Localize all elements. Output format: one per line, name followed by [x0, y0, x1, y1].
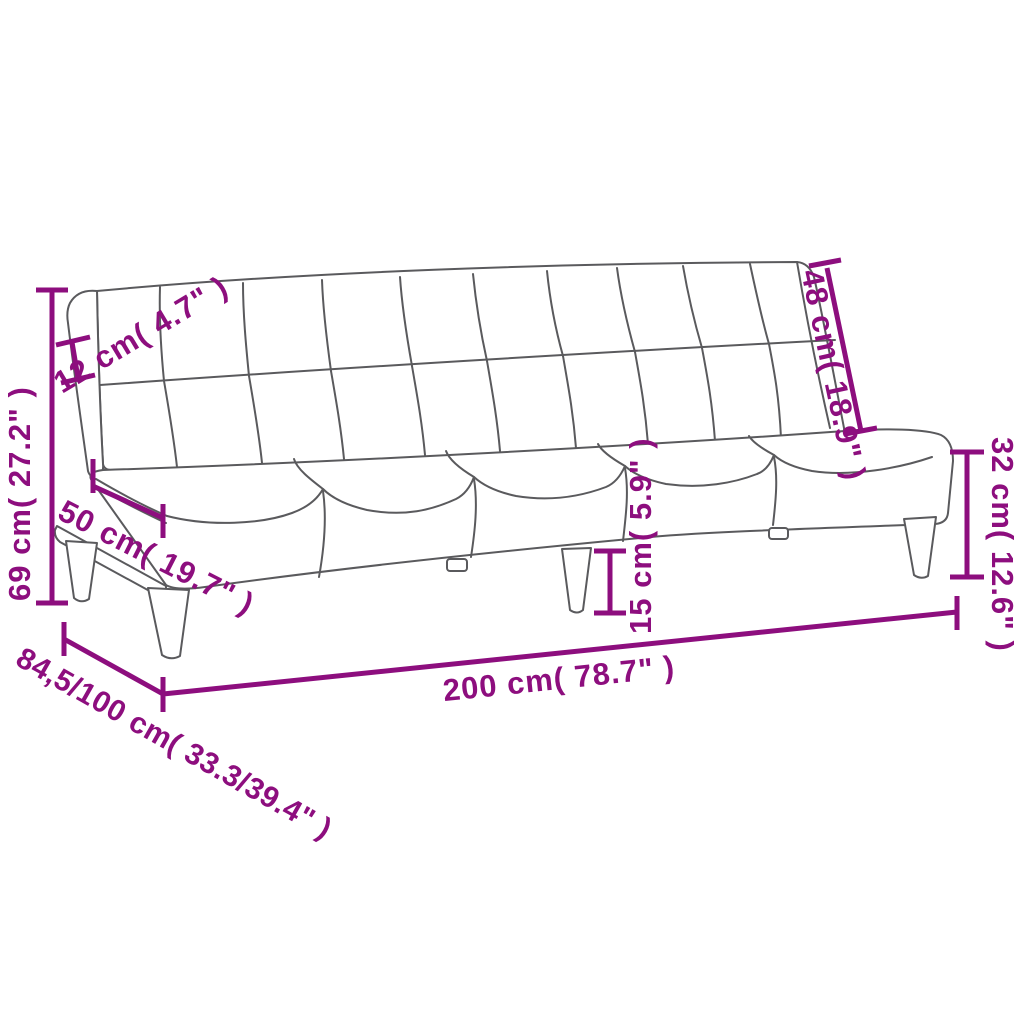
leg-height-line: [594, 551, 626, 613]
seat-height-label: 32 cm( 12.6" ): [985, 437, 1020, 652]
leg-back-left: [66, 541, 97, 601]
overall-depth-label: 84,5/100 cm( 33.3/39.4" ): [11, 641, 338, 846]
overall-height-line: [36, 290, 68, 603]
leg-center: [562, 548, 591, 613]
frame-tab: [447, 559, 467, 571]
overall-height-dimension: 69 cm( 27.2" ): [2, 290, 68, 603]
overall-height-label: 69 cm( 27.2" ): [2, 386, 37, 601]
seat-height-line: [950, 452, 984, 577]
leg-right: [904, 517, 936, 578]
overall-width-label: 200 cm( 78.7" ): [441, 649, 676, 708]
seat-height-dimension: 32 cm( 12.6" ): [950, 437, 1020, 652]
frame-tab: [769, 528, 788, 539]
leg-height-label: 15 cm( 5.9" ): [623, 437, 658, 634]
diagram-canvas: 69 cm( 27.2" ) 12 cm( 4.7" ) 50 cm( 19.7…: [0, 0, 1024, 1024]
leg-front-left: [148, 588, 189, 658]
sofa-dimension-diagram: 69 cm( 27.2" ) 12 cm( 4.7" ) 50 cm( 19.7…: [0, 0, 1024, 1024]
overall-width-dimension: 200 cm( 78.7" ): [163, 596, 957, 712]
